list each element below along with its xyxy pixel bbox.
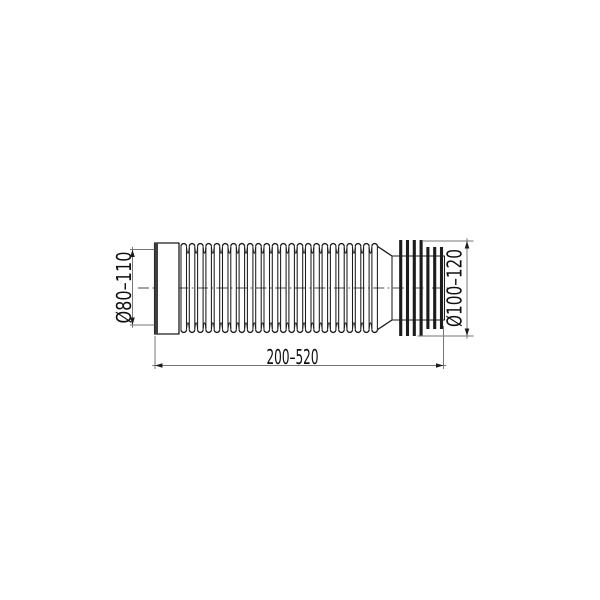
right-diameter-dimension: Ø100–120 (418, 238, 474, 339)
wc-connector-drawing: Ø80–110 Ø100–120 200–520 (0, 0, 600, 600)
inlet-collar (155, 243, 179, 334)
technical-drawing-canvas: Ø80–110 Ø100–120 200–520 (0, 0, 600, 600)
right-diameter-label: Ø100–120 (443, 249, 467, 327)
left-diameter-dimension: Ø80–110 (112, 247, 154, 328)
